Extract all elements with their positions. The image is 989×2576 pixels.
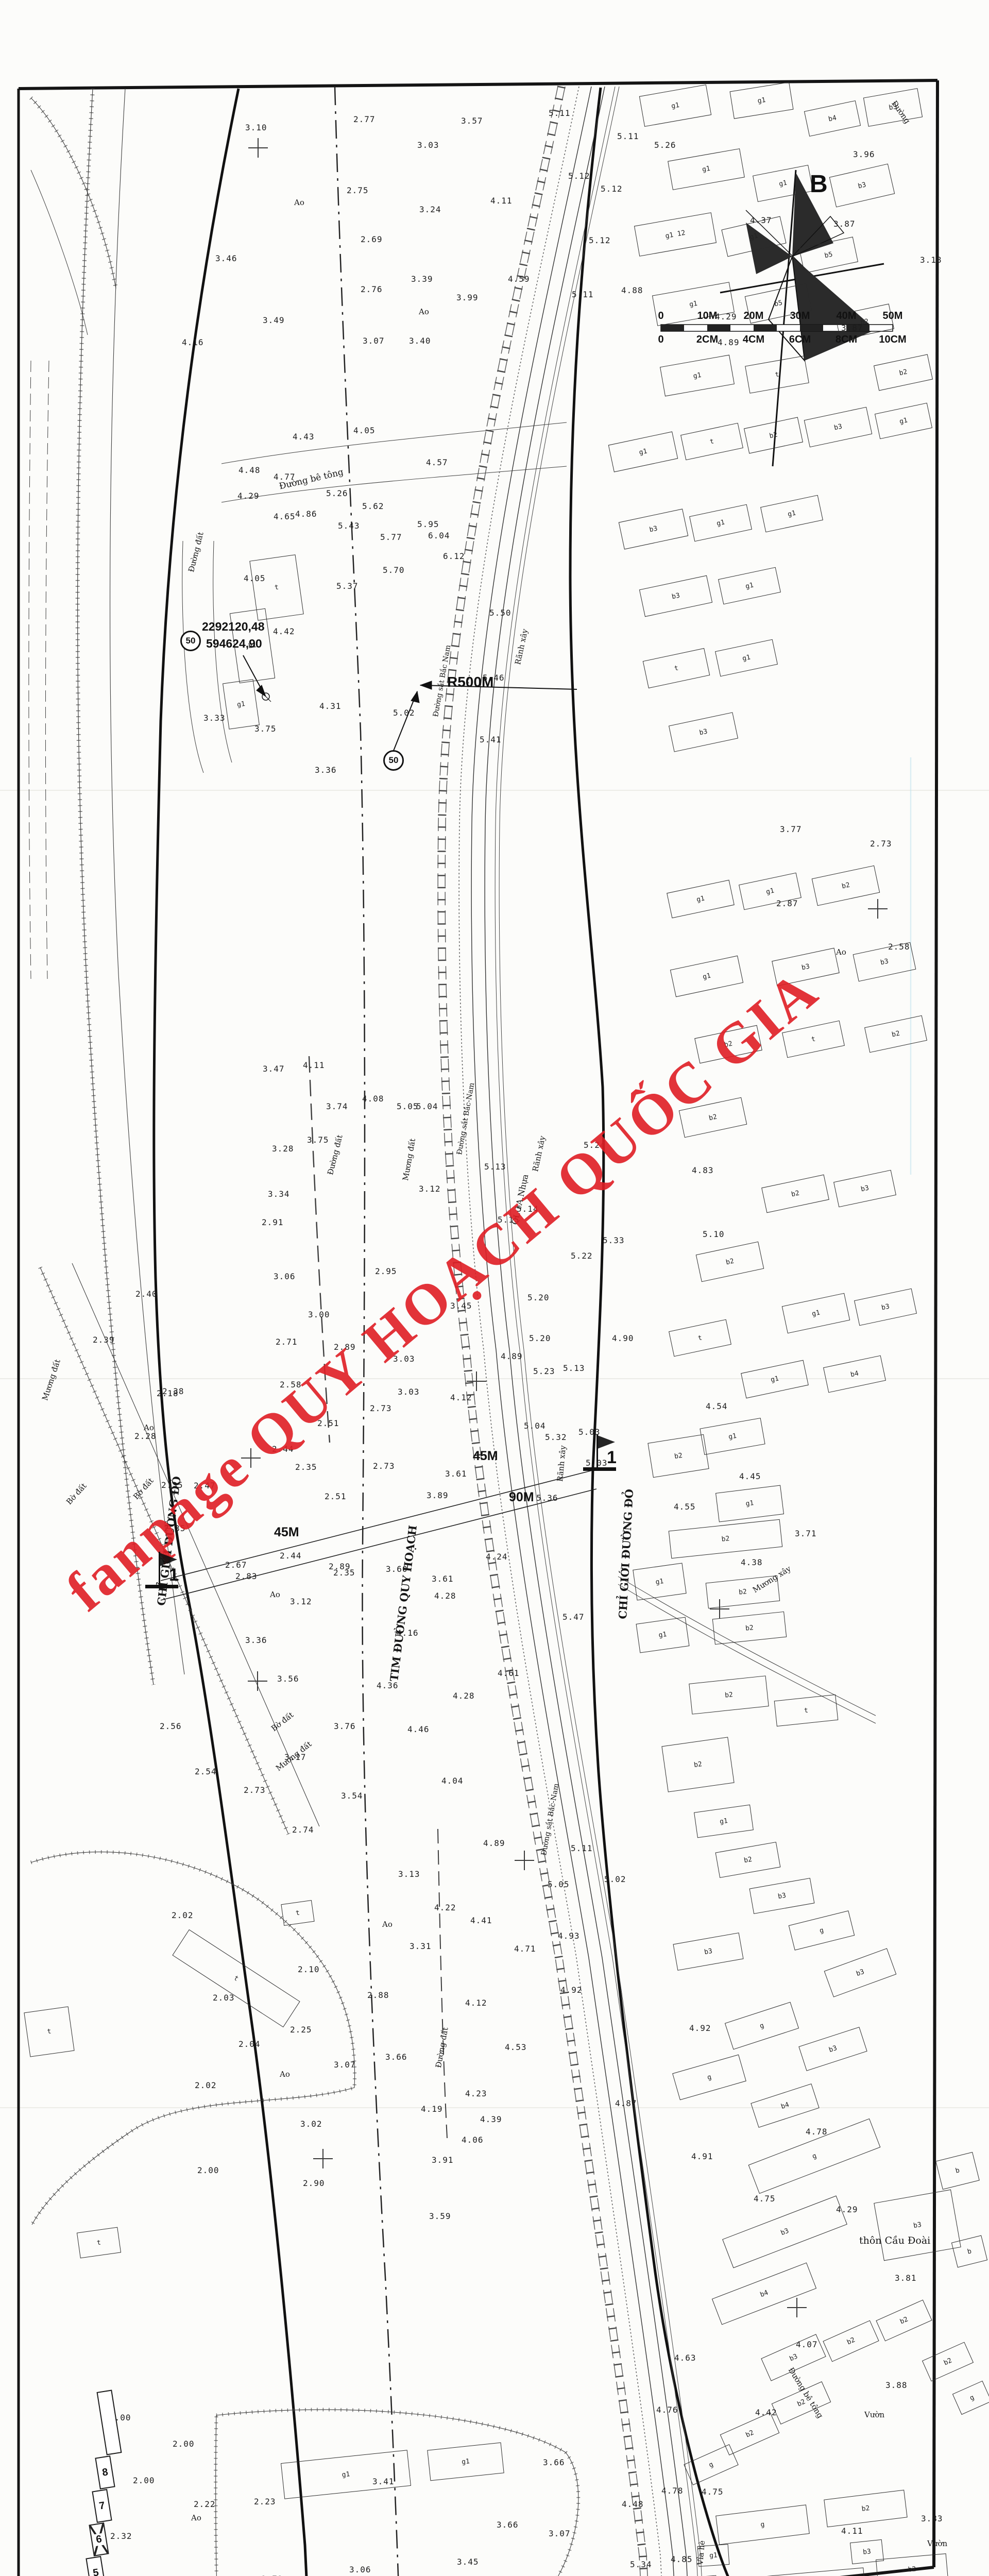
scale-tick: 4CM: [743, 334, 764, 346]
spot-elevation: 4.93: [558, 1931, 580, 1941]
spot-elevation: 2.73: [244, 1785, 266, 1795]
spot-elevation: 3.03: [398, 1387, 420, 1397]
spot-elevation: 5.05: [397, 1101, 419, 1111]
parcel-label: g1: [745, 581, 754, 590]
spot-elevation: 3.87: [833, 219, 856, 229]
spot-elevation: 4.92: [689, 2023, 711, 2033]
spot-elevation: 5.05: [548, 1879, 570, 1889]
spot-elevation: 4.08: [362, 1094, 384, 1104]
spot-elevation: 2.74: [292, 1825, 314, 1835]
spot-elevation: 3.02: [300, 2119, 322, 2129]
spot-elevation: 2.10: [298, 1964, 320, 1974]
spot-elevation: 5.04: [416, 1101, 438, 1111]
parcel-label: b4: [759, 2289, 770, 2299]
spot-elevation: 3.18: [920, 255, 942, 265]
map-label: Vườn: [864, 2410, 884, 2419]
spot-elevation: 3.91: [432, 2155, 454, 2165]
section-flag-right: 1: [589, 1434, 625, 1476]
spot-elevation: 3.06: [274, 1272, 296, 1281]
spot-elevation: 4.07: [796, 2340, 818, 2349]
spot-elevation: 4.54: [706, 1401, 728, 1411]
spot-elevation: 3.31: [410, 1941, 432, 1951]
parcel-label: g1: [787, 509, 796, 518]
spot-elevation: 2.76: [361, 284, 383, 294]
parcel-label: b2: [693, 1760, 703, 1769]
spot-elevation: 4.88: [621, 285, 643, 295]
spot-elevation: 5.02: [604, 1874, 626, 1884]
parcel-label: t: [811, 1035, 816, 1043]
parcel-label: g1: [671, 101, 680, 110]
parcel-label: b3: [801, 962, 810, 972]
spot-elevation: 5.02: [393, 708, 415, 718]
parcel-label: b3: [777, 1891, 787, 1900]
spot-elevation: 3.24: [419, 205, 441, 214]
parcel-label: g: [811, 2152, 818, 2161]
scale-tick: 40M: [837, 310, 857, 322]
grid-cross: [248, 138, 268, 158]
spot-elevation: 2.69: [361, 234, 383, 244]
radius-label: R500M: [447, 674, 493, 690]
map-label: Ao: [191, 2513, 201, 2522]
parcel-label: g1: [709, 2551, 718, 2560]
scale-tick: 2CM: [696, 334, 718, 346]
spot-elevation: 2.22: [194, 2499, 216, 2509]
parcel-label: g1: [342, 2470, 350, 2479]
spot-elevation: 5.36: [536, 1493, 558, 1503]
spot-elevation: 4.29: [836, 2205, 858, 2214]
spot-elevation: 4.71: [514, 1944, 536, 1954]
spot-elevation: 4.53: [505, 2042, 527, 2052]
parcel-label: g1: [655, 1577, 664, 1586]
parcel-label: b4: [780, 2100, 790, 2110]
spot-elevation: 2.51: [317, 1418, 339, 1428]
parcel-label: t: [96, 2239, 101, 2247]
grid-cross: [787, 2298, 807, 2317]
svg-text:TẬP ĐOÀN VINGROUP - CÔNG TY CP: TẬP ĐOÀN VINGROUP - CÔNG TY CP: [0, 0, 244, 2576]
parcel-label: b3: [828, 2044, 838, 2054]
spot-elevation: 4.19: [421, 2104, 443, 2114]
parcel-label: g1: [770, 1375, 779, 1384]
spot-elevation: 4.06: [462, 2135, 484, 2145]
spot-elevation: 5.95: [417, 519, 439, 529]
parcel-label: g1: [702, 972, 711, 981]
spot-elevation: 3.56: [277, 1674, 299, 1684]
map-label: Ao: [382, 1920, 393, 1929]
spot-elevation: 3.45: [450, 1301, 472, 1311]
spot-elevation: 4.45: [739, 1471, 761, 1481]
spot-elevation: 4.37: [750, 215, 772, 225]
spot-elevation: 2.89: [329, 1562, 351, 1571]
company-stamp: TẬP ĐOÀN VINGROUP - CÔNG TY CP 010124548…: [0, 0, 245, 2576]
spot-elevation: 3.45: [457, 2557, 479, 2567]
parcel-label: t: [804, 1706, 808, 1715]
spot-elevation: 2.00: [133, 2476, 155, 2485]
parcel-label: t: [697, 1334, 703, 1342]
spot-elevation: 5.11: [549, 108, 571, 118]
spot-elevation: 4.43: [293, 432, 315, 442]
spot-elevation: 3.76: [334, 1721, 356, 1731]
parcel-label: b2: [908, 2565, 916, 2573]
spot-elevation: 4.59: [508, 274, 530, 284]
spot-elevation: 4.65: [274, 512, 296, 521]
spot-elevation: 5.11: [617, 131, 639, 141]
parcel: g1: [223, 679, 260, 729]
spot-elevation: 6.04: [428, 531, 450, 540]
parcel-label: g1: [702, 165, 711, 174]
spot-elevation: 4.63: [674, 2353, 696, 2363]
spot-elevation: 2.23: [254, 2497, 276, 2506]
spot-elevation: 5.11: [572, 290, 594, 299]
spot-elevation: 2.87: [776, 899, 798, 908]
grid-cross: [313, 2149, 333, 2168]
spot-elevation: 3.75: [307, 1135, 329, 1145]
spot-elevation: 4.41: [470, 1916, 492, 1925]
spot-elevation: 5.43: [338, 521, 360, 531]
parcel-label: g: [706, 2073, 712, 2082]
parcel-label: b5: [824, 250, 833, 260]
spot-elevation: 2.75: [347, 185, 369, 195]
scale-tick: 0: [658, 310, 663, 322]
spot-elevation: 4.24: [486, 1552, 508, 1562]
section-width-left: 45M: [274, 1525, 299, 1540]
spot-elevation: 4.85: [671, 2554, 693, 2564]
spot-elevation: 4.92: [560, 1985, 583, 1995]
spot-elevation: 4.61: [498, 1668, 520, 1678]
scale-tick: 8CM: [835, 334, 857, 346]
parcel-label: b3: [857, 181, 867, 190]
spot-elevation: 3.74: [326, 1101, 348, 1111]
parcel-label: b4: [850, 1369, 859, 1379]
grid-cross: [515, 1851, 534, 1870]
spot-elevation: 4.55: [674, 1502, 696, 1512]
parcel-label: b3: [913, 2221, 922, 2229]
spot-elevation: 4.29: [715, 312, 737, 321]
spot-elevation: 3.36: [245, 1635, 267, 1645]
spot-elevation: 6.12: [443, 551, 465, 561]
spot-elevation: 5.33: [603, 1235, 625, 1245]
spot-elevation: 4.42: [755, 2408, 777, 2417]
parcel-label: b2: [721, 1535, 730, 1544]
parcel-label: b2: [724, 1040, 733, 1049]
grid-cross: [241, 1448, 261, 1468]
spot-elevation: 4.38: [741, 1557, 763, 1567]
parcel-label: b2: [791, 1189, 800, 1198]
parcel-label: b5: [774, 299, 783, 308]
scale-tick: 30M: [790, 310, 810, 322]
parcel-label: t: [674, 664, 679, 672]
parcel-label: b2: [861, 2504, 870, 2513]
parcel-label: g: [760, 2521, 765, 2529]
parcel-label: b3: [833, 422, 843, 432]
grid-cross: [248, 1671, 267, 1691]
spot-elevation: 4.75: [702, 2487, 724, 2497]
parcel-label: g1: [461, 2458, 470, 2466]
grid-cross: [868, 899, 888, 919]
parcel-label: g: [819, 1926, 824, 1935]
spot-elevation: 3.66: [543, 2458, 565, 2467]
scale-tick: 20M: [744, 310, 764, 322]
parcel-label: b3: [860, 1184, 869, 1193]
scale-tick: 0: [658, 334, 663, 346]
spot-elevation: 4.04: [441, 1776, 464, 1786]
parcel-label: b2: [708, 1113, 718, 1122]
spot-elevation: 2.58: [888, 942, 910, 952]
map-linework: ỦY BAN NHÂN DÂN THÀNH PHỐ HÀ NỘI VIỆN QU…: [0, 0, 989, 2576]
spot-elevation: 3.34: [268, 1189, 290, 1199]
spot-elevation: 2.32: [110, 2531, 132, 2541]
parcel-label: b2: [724, 1691, 733, 1700]
map-label: Ao: [270, 1590, 280, 1599]
spot-elevation: 2.02: [172, 1910, 194, 1920]
spot-elevation: 4.11: [303, 1060, 325, 1070]
spot-elevation: 5.77: [380, 532, 402, 542]
parcel-label: g1: [728, 1432, 737, 1440]
parcel-label: b2: [744, 2429, 755, 2439]
spot-elevation: 2.28: [134, 1431, 157, 1441]
parcel-label: t: [232, 1974, 240, 1983]
spot-elevation: 2.44: [272, 1444, 294, 1454]
parcel-label: b4: [828, 114, 837, 123]
parcel-label: b2: [738, 1588, 747, 1597]
parcel-label: b2: [898, 368, 908, 377]
coordinate-x: 2292120,48: [202, 620, 265, 634]
planning-map-sheet: ỦY BAN NHÂN DÂN THÀNH PHỐ HÀ NỘI VIỆN QU…: [0, 0, 989, 2576]
spot-elevation: 5.50: [489, 608, 511, 618]
parcel-label: g1: [811, 1309, 821, 1318]
spot-elevation: 4.48: [238, 465, 261, 475]
parcel-label: b2: [846, 2336, 856, 2346]
coordinate-y: 594624,90: [206, 637, 262, 651]
spot-elevation: 5.34: [630, 2560, 652, 2569]
spot-elevation: 5.12: [589, 235, 611, 245]
parcel-label: b3: [671, 591, 680, 601]
parcel-label: g1: [719, 1817, 728, 1825]
parcel-label: g1: [757, 96, 766, 105]
section-width-total: 90M: [509, 1490, 534, 1505]
spot-elevation: 5.47: [562, 1612, 585, 1622]
spot-elevation: 5.37: [336, 581, 359, 591]
spot-elevation: 4.57: [426, 457, 448, 467]
spot-elevation: 2.67: [225, 1560, 247, 1570]
spot-elevation: 4.46: [407, 1724, 430, 1734]
spot-elevation: 3.89: [427, 1490, 449, 1500]
parcel: b3: [850, 2539, 884, 2564]
spot-elevation: 4.42: [273, 626, 295, 636]
parcel-label: g1: [692, 371, 702, 380]
spot-elevation: 2.73: [373, 1461, 395, 1471]
parcel-label: b2: [899, 2315, 909, 2326]
spot-elevation: 4.16: [182, 337, 204, 347]
spot-elevation: 2.39: [93, 1335, 115, 1345]
spot-elevation: 2.51: [325, 1492, 347, 1501]
spot-elevation: 2.71: [276, 1337, 298, 1347]
parcel-label: t: [774, 370, 779, 379]
grid-cross: [467, 1371, 486, 1391]
spot-elevation: 5.13: [484, 1162, 506, 1172]
spot-elevation: 4.90: [612, 1333, 634, 1343]
spot-elevation: 4.22: [434, 1903, 456, 1912]
parcel-label: b2: [745, 1624, 754, 1633]
spot-elevation: 3.36: [315, 765, 337, 775]
spot-elevation: 5.41: [480, 735, 502, 744]
spot-elevation: 5.13: [563, 1363, 585, 1373]
spot-elevation: 3.66: [385, 2052, 407, 2062]
parcel-label: t: [709, 437, 715, 446]
parcel-label: g1: [899, 416, 908, 426]
spot-elevation: 5.70: [383, 565, 405, 575]
spot-elevation: 5.20: [527, 1293, 550, 1302]
parcel-label: g: [708, 2461, 714, 2469]
parcel: t: [24, 2006, 74, 2057]
spot-elevation: 4.12: [465, 1998, 487, 2008]
spot-elevation: 3.13: [398, 1869, 420, 1879]
spot-elevation: 2.83: [235, 1571, 258, 1581]
point-marker-50: 50: [180, 631, 201, 651]
spot-elevation: 3.88: [885, 2380, 908, 2390]
spot-elevation: 4.89: [501, 1351, 523, 1361]
section-flag-left: 1: [151, 1552, 187, 1593]
spot-elevation: 2.73: [370, 1403, 392, 1413]
spot-elevation: 5.12: [568, 171, 590, 181]
parcel-label: b2: [841, 881, 850, 890]
parcel-label: b2: [725, 1257, 735, 1266]
spot-elevation: 3.33: [203, 713, 226, 723]
spot-elevation: 2.04: [238, 2039, 261, 2049]
spot-elevation: 5.62: [362, 501, 384, 511]
spot-elevation: 3.81: [895, 2273, 917, 2283]
parcel-label: b3: [881, 1302, 890, 1312]
spot-elevation: 3.71: [795, 1529, 817, 1538]
parcel-label: b3: [788, 2352, 798, 2363]
spot-elevation: 2.35: [295, 1462, 317, 1472]
scale-tick: 6CM: [789, 334, 811, 346]
spot-elevation: 4.05: [353, 426, 376, 435]
spot-elevation: 2.58: [280, 1380, 302, 1389]
section-width-right: 45M: [473, 1449, 498, 1464]
parcel-label: b2: [674, 1451, 683, 1460]
spot-elevation: 4.86: [295, 509, 317, 519]
spot-elevation: 5.04: [524, 1421, 546, 1431]
map-label: thôn Cầu Đoài: [859, 2235, 930, 2246]
spot-elevation: 3.41: [372, 2477, 395, 2486]
spot-elevation: 2.03: [213, 1993, 235, 2003]
spot-elevation: 2.25: [290, 2025, 312, 2035]
parcel-label: b3: [880, 957, 889, 967]
parcel-label: g1 12: [664, 229, 686, 240]
parcel-label: g1: [778, 179, 788, 188]
spot-elevation: 2.73: [870, 839, 892, 849]
map-label: Ao: [144, 1423, 154, 1432]
spot-elevation: 3.07: [334, 2060, 356, 2070]
spot-elevation: 4.05: [244, 573, 266, 583]
parcel-label: g1: [716, 518, 725, 528]
spot-elevation: 2.00: [173, 2439, 195, 2449]
spot-elevation: 3.96: [853, 149, 875, 159]
spot-elevation: 3.39: [411, 274, 433, 284]
spot-elevation: 4.83: [692, 1165, 714, 1175]
spot-elevation: 4.87: [615, 2098, 637, 2108]
spot-elevation: 4.78: [661, 2486, 684, 2496]
spot-elevation: 3.00: [308, 1310, 330, 1319]
spot-elevation: 3.61: [445, 1469, 467, 1479]
spot-elevation: 3.10: [245, 123, 267, 132]
scale-tick: 50M: [883, 310, 903, 322]
spot-elevation: 2.77: [353, 114, 376, 124]
spot-elevation: 5.32: [545, 1432, 567, 1442]
grid-cross: [710, 1599, 729, 1619]
spot-elevation: 2.38: [162, 1386, 184, 1396]
spot-elevation: 3.54: [341, 1791, 363, 1801]
scale-tick: 10CM: [879, 334, 906, 346]
spot-elevation: 4.75: [754, 2194, 776, 2204]
parcel-label: g1: [689, 299, 698, 308]
spot-elevation: 5.11: [571, 1843, 593, 1853]
spot-elevation: 4.76: [656, 2405, 678, 2415]
spot-elevation: 2.89: [334, 1342, 356, 1352]
spot-elevation: 5.12: [601, 184, 623, 194]
map-label: Ao: [419, 307, 429, 316]
spot-elevation: 5.20: [529, 1333, 551, 1343]
compass-north-label: B: [810, 170, 828, 198]
parcel-label: b2: [769, 431, 778, 440]
parcel-label: b: [966, 2247, 972, 2256]
parcel-label: b3: [855, 1968, 865, 1977]
map-label: Vườn: [927, 2539, 947, 2548]
parcel-label: g1: [749, 232, 759, 241]
spot-elevation: 3.57: [461, 116, 483, 126]
spot-elevation: 3.07: [363, 336, 385, 346]
spot-elevation: 5.26: [654, 140, 676, 150]
spot-elevation: 3.03: [417, 140, 439, 150]
parcel-label: t: [47, 2028, 52, 2036]
spot-elevation: 3.40: [409, 336, 431, 346]
spot-elevation: 2.95: [375, 1266, 397, 1276]
spot-elevation: 3.28: [272, 1144, 294, 1154]
spot-elevation: 3.07: [549, 2529, 571, 2538]
spot-elevation: 2.90: [303, 2178, 325, 2188]
spot-elevation: 3.87: [841, 323, 863, 333]
parcel-label: g1: [745, 1499, 754, 1508]
parcel-label: g: [759, 2022, 765, 2030]
spot-elevation: 4.29: [237, 491, 260, 501]
spot-elevation: 2.40: [135, 1289, 158, 1299]
spot-elevation: 3.83: [921, 2514, 943, 2523]
spot-elevation: 4.78: [806, 2127, 828, 2137]
spot-elevation: 2.91: [262, 1217, 284, 1227]
spot-elevation: 4.36: [377, 1681, 399, 1690]
scale-tick: 10M: [697, 310, 718, 322]
parcel-label: b3: [780, 2227, 790, 2237]
parcel: b2: [661, 1737, 734, 1792]
parcel-label: g1: [236, 700, 246, 708]
parcel-label: g1: [696, 894, 705, 904]
spot-elevation: 3.49: [263, 315, 285, 325]
spot-elevation: 5.26: [326, 488, 348, 498]
parcel-label: g1: [638, 447, 647, 456]
parcel-label: g1: [765, 887, 775, 896]
spot-elevation: 2.72: [261, 2574, 283, 2576]
spot-elevation: 3.59: [429, 2211, 451, 2221]
spot-elevation: 3.06: [349, 2565, 371, 2574]
spot-elevation: 4.39: [480, 2114, 502, 2124]
map-label: Ao: [280, 2070, 290, 2079]
spot-elevation: 3.99: [456, 293, 479, 302]
spot-elevation: 5.10: [703, 1229, 725, 1239]
spot-elevation: 4.28: [453, 1691, 475, 1701]
parcel-label: b2: [943, 2357, 953, 2367]
spot-elevation: 4.23: [465, 2089, 487, 2098]
parcel-label: t: [274, 584, 279, 592]
